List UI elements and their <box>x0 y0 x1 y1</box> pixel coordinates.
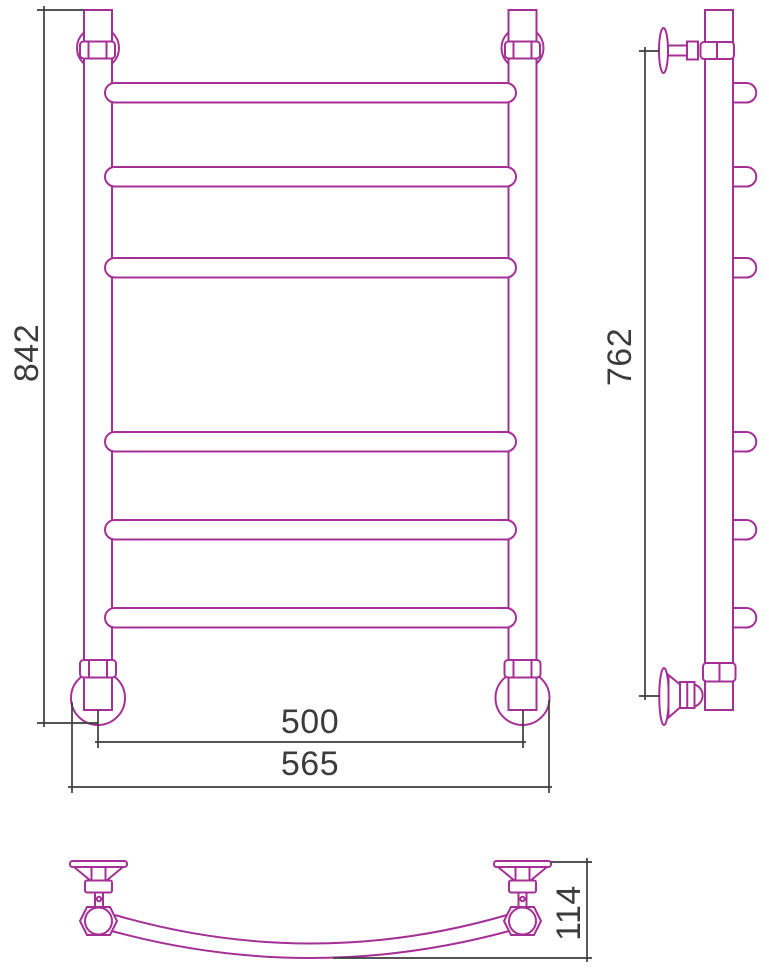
nut-body <box>80 660 116 678</box>
cross-bar-3 <box>105 258 516 278</box>
bar-end-4 <box>733 432 756 452</box>
bracket-stem <box>668 46 687 56</box>
side-post <box>705 10 733 710</box>
hex-nut-bottom-left <box>80 660 116 678</box>
nut-body <box>505 42 540 59</box>
cross-bar-2 <box>105 167 516 187</box>
hex-nut-top-right <box>505 42 540 59</box>
mount-stem <box>92 867 106 881</box>
hex-nut-top-left <box>80 42 115 59</box>
post-right <box>509 10 537 710</box>
bar-end-6 <box>733 608 756 628</box>
curved-bar-top-edge <box>115 915 507 944</box>
plan-mount-right <box>494 861 551 935</box>
cross-bar-6 <box>105 608 516 628</box>
bar-end-3 <box>733 258 756 278</box>
dimension-500: 500 <box>95 703 526 748</box>
plan-mount-left <box>70 861 127 935</box>
plan-view <box>70 861 551 958</box>
mount-stem <box>516 867 530 881</box>
dimension-label-114: 114 <box>550 885 588 941</box>
dimension-label-500: 500 <box>281 703 339 741</box>
front-view <box>71 10 550 725</box>
mount-collar <box>509 881 536 893</box>
wall-flange <box>659 28 668 73</box>
cross-bar-5 <box>105 520 516 540</box>
wall-flange <box>659 668 669 725</box>
drawing-svg: 842 762 500 565 114 <box>0 0 769 970</box>
dimension-114: 114 <box>333 858 592 962</box>
nut-body <box>505 660 541 678</box>
flange-cone <box>669 675 681 718</box>
dimension-label-762: 762 <box>601 328 639 386</box>
nut-body <box>80 42 115 59</box>
cross-bar-4 <box>105 432 516 452</box>
bar-end-5 <box>733 520 756 540</box>
mount-collar <box>85 881 112 893</box>
side-view <box>659 10 756 725</box>
dimension-762: 762 <box>601 47 660 700</box>
post-left <box>84 10 112 710</box>
hex-nut-bottom-right <box>505 660 541 678</box>
dimension-label-565: 565 <box>281 745 339 783</box>
bar-end-1 <box>733 83 756 103</box>
bar-end-2 <box>733 167 756 187</box>
pipe-joint-arc <box>695 685 703 707</box>
bracket-block <box>687 42 698 60</box>
cross-bar-1 <box>105 83 516 103</box>
dimension-label-842: 842 <box>8 324 46 382</box>
technical-drawing-towel-rail: 842 762 500 565 114 <box>0 0 769 970</box>
